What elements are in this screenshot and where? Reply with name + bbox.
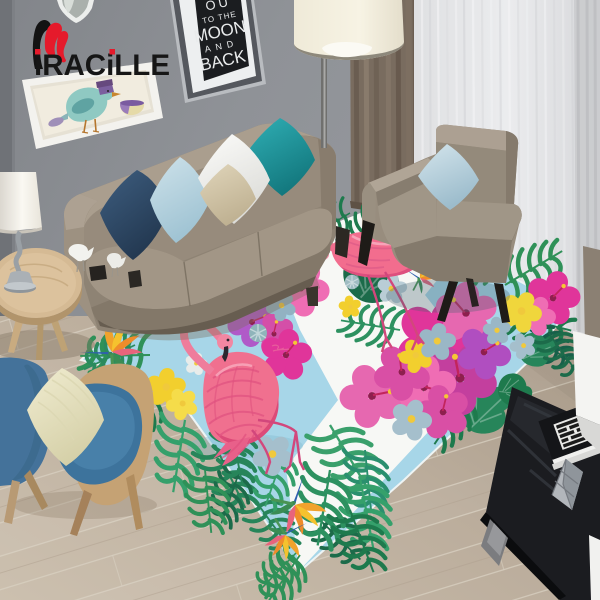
svg-text:iRACiLLE: iRACiLLE [34,49,170,82]
